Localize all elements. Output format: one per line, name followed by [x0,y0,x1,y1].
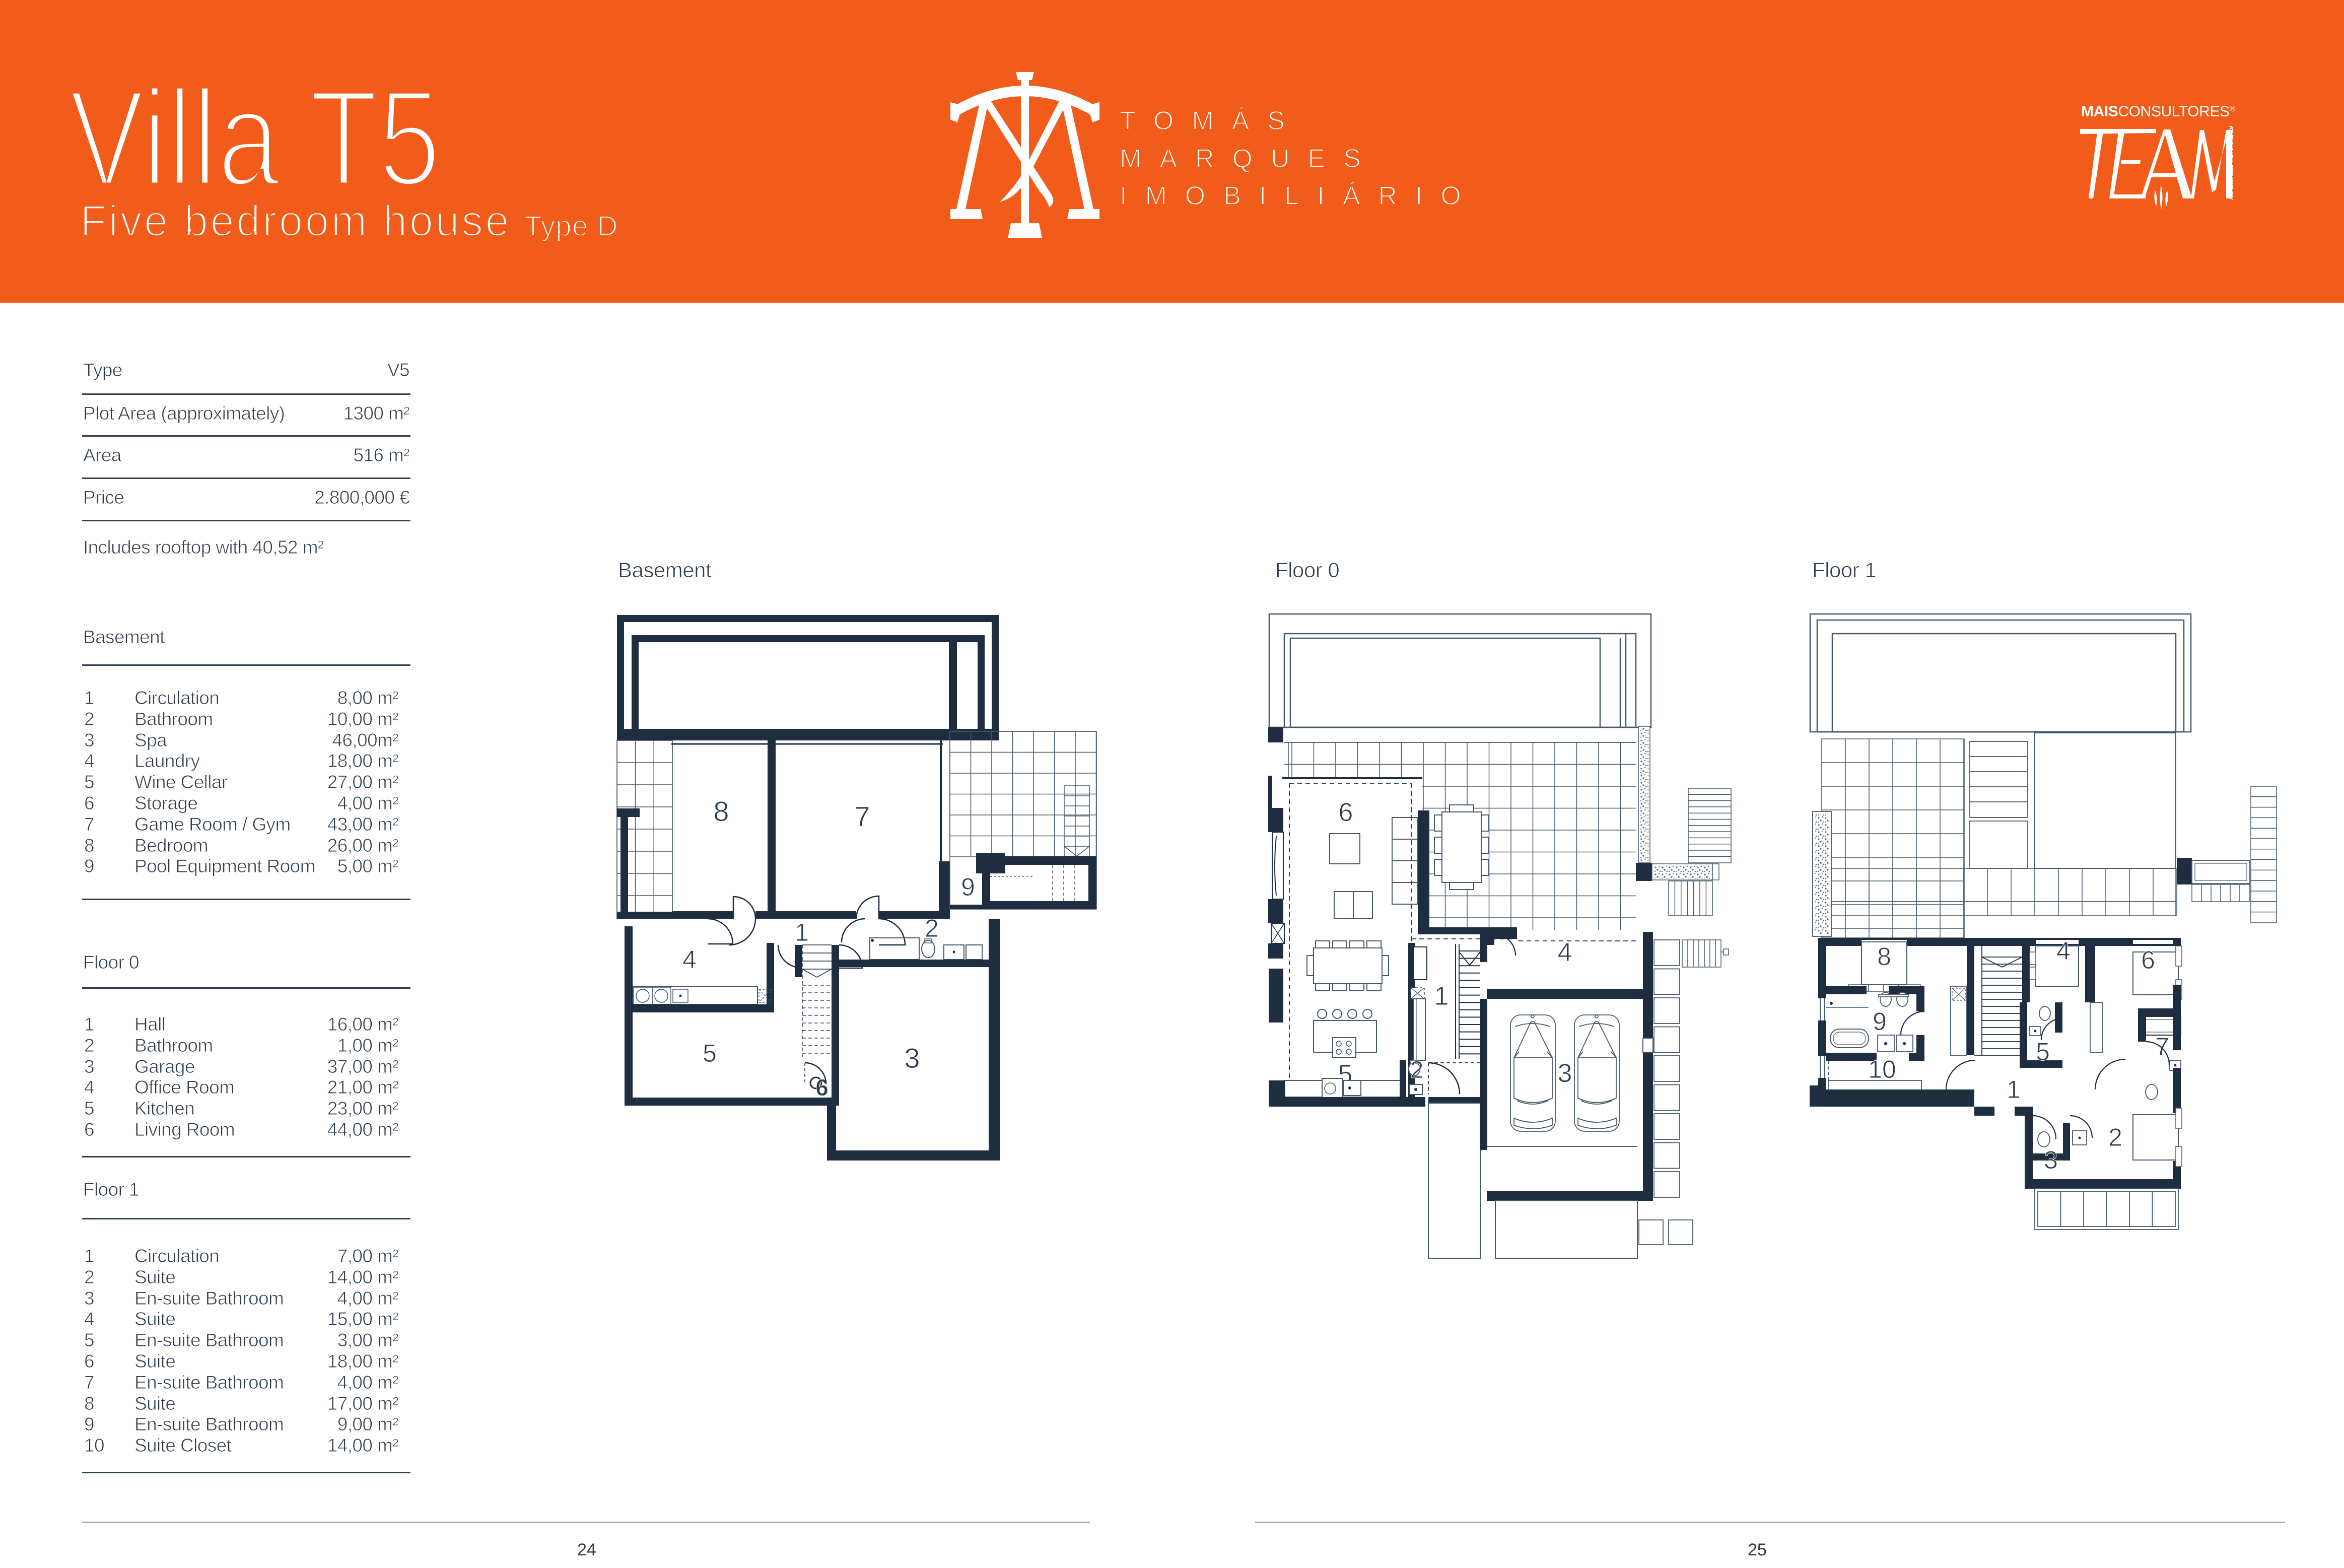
svg-text:2: 2 [925,914,939,942]
svg-text:5: 5 [2036,1038,2050,1066]
svg-text:4: 4 [682,945,697,974]
svg-text:7: 7 [854,800,870,832]
svg-text:9: 9 [1873,1007,1887,1036]
svg-text:7: 7 [2155,1033,2169,1061]
svg-text:6: 6 [1339,798,1353,827]
svg-text:8: 8 [1877,942,1891,971]
svg-text:9: 9 [961,873,975,901]
svg-text:10: 10 [1868,1055,1896,1083]
svg-text:2: 2 [2108,1123,2122,1151]
svg-text:4: 4 [2056,937,2071,965]
svg-text:AMI: 23990 SEED THE FUTURE, L: AMI: 23990 SEED THE FUTURE, LDA. [2229,126,2234,199]
svg-text:3: 3 [1558,1059,1572,1088]
svg-text:5: 5 [703,1039,717,1067]
svg-text:3: 3 [2044,1146,2058,1174]
svg-text:2: 2 [1410,1057,1424,1083]
svg-text:6: 6 [2141,946,2155,974]
svg-text:3: 3 [904,1042,920,1074]
svg-text:8: 8 [713,795,729,827]
svg-text:1: 1 [795,918,809,946]
svg-text:4: 4 [1558,938,1572,967]
svg-text:1: 1 [2007,1075,2021,1104]
svg-text:6: 6 [815,1074,829,1101]
svg-text:1: 1 [1434,982,1449,1011]
